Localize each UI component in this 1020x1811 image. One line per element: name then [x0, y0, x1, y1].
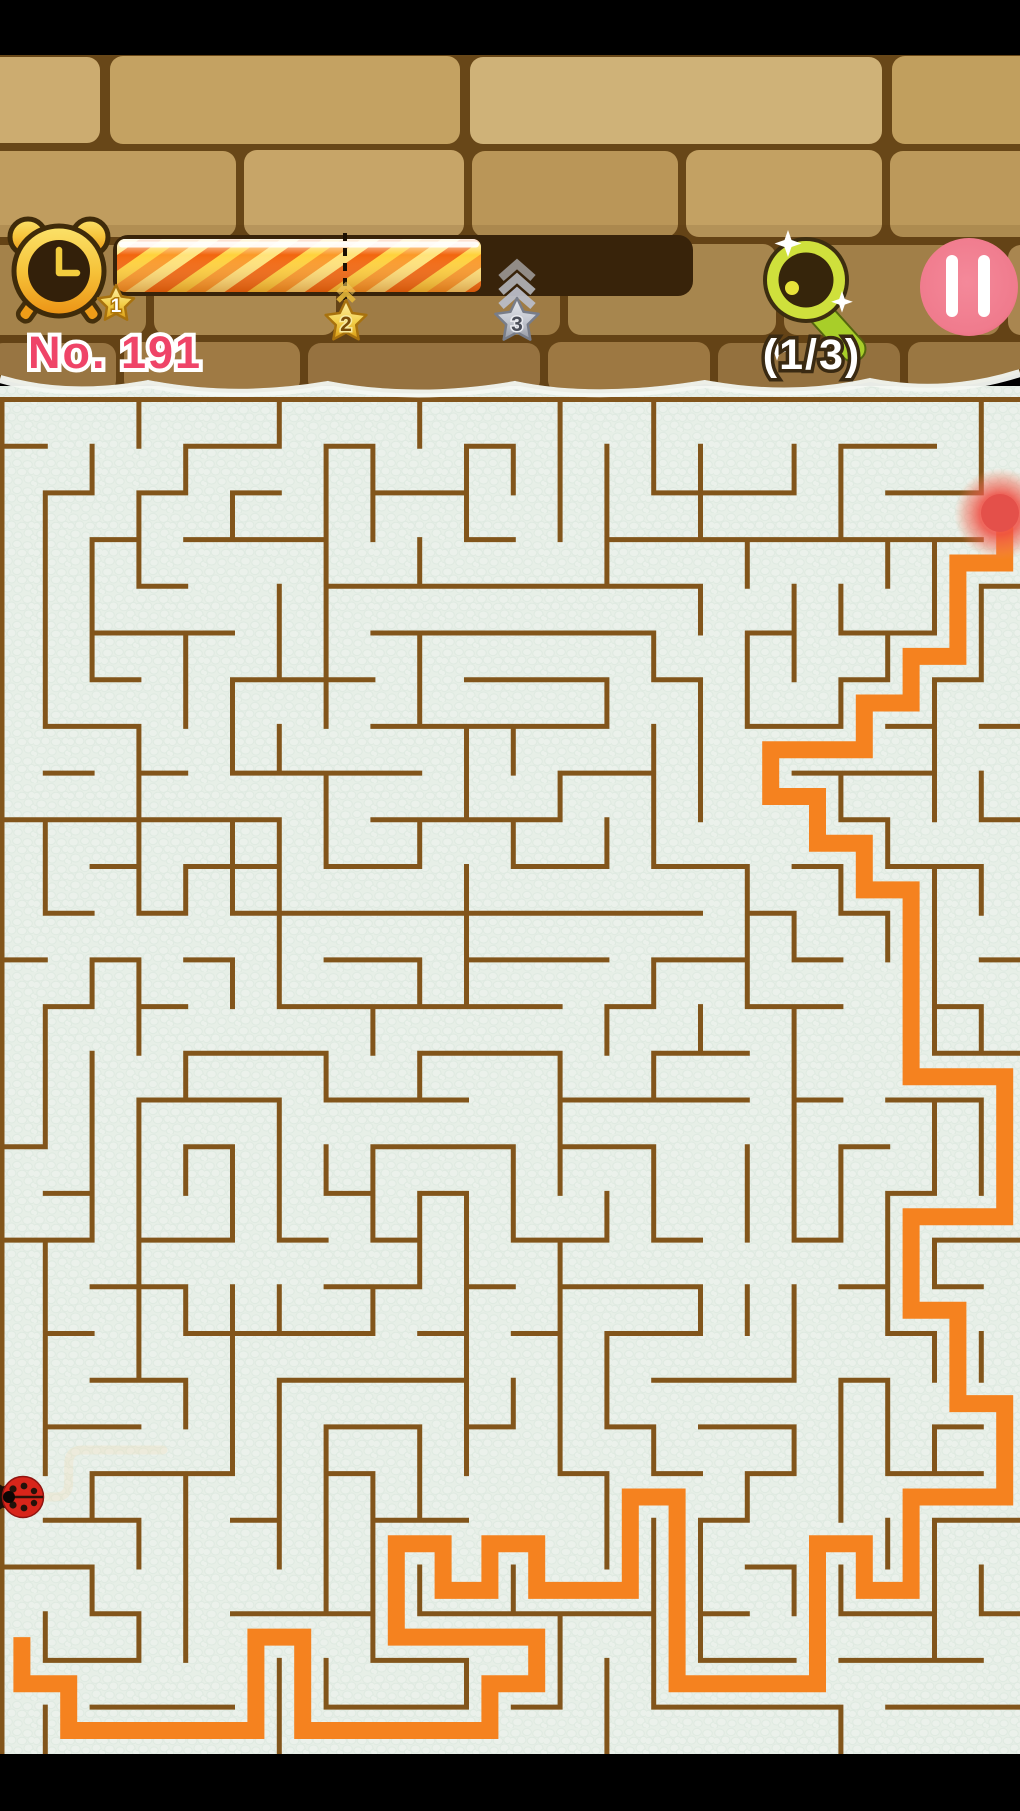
svg-text:No. 191: No. 191 [28, 327, 202, 378]
svg-text:2: 2 [340, 313, 352, 336]
svg-text:1: 1 [111, 296, 122, 317]
svg-text:3: 3 [511, 313, 523, 336]
svg-text:(1/3): (1/3) [763, 331, 861, 379]
